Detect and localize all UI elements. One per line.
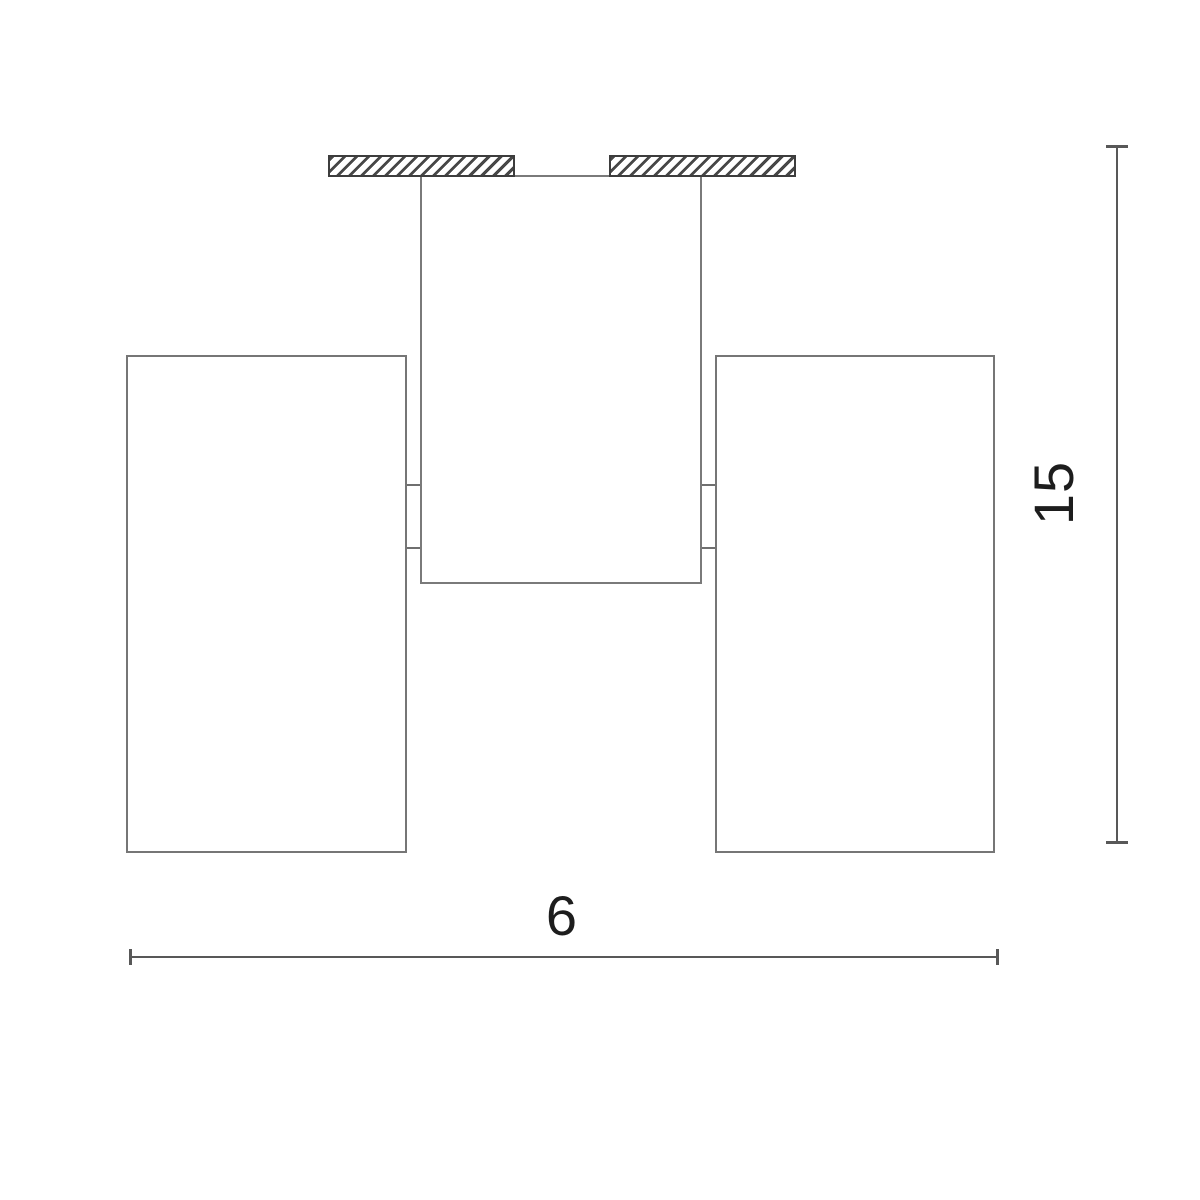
lamp-cylinder-left xyxy=(126,355,407,853)
height-dimension-end-cap-bottom xyxy=(1106,841,1128,844)
pivot-tick-left-lower xyxy=(406,547,421,549)
lamp-cylinder-right xyxy=(715,355,995,853)
technical-drawing-canvas: 15 6 xyxy=(0,0,1200,1200)
height-dimension-line xyxy=(1116,146,1118,843)
pivot-tick-left-upper xyxy=(406,484,421,486)
height-dimension-end-cap-top xyxy=(1106,145,1128,148)
height-dimension-label: 15 xyxy=(1024,393,1084,593)
ceiling-mount-plate-left xyxy=(328,155,515,177)
width-dimension-line xyxy=(130,956,998,958)
width-dimension-end-cap-left xyxy=(129,949,132,965)
pivot-tick-right-upper xyxy=(701,484,716,486)
pivot-tick-right-lower xyxy=(701,547,716,549)
width-dimension-end-cap-right xyxy=(996,949,999,965)
fixture-body-outline xyxy=(420,175,702,584)
ceiling-mount-plate-right xyxy=(609,155,796,177)
width-dimension-label: 6 xyxy=(462,886,662,946)
